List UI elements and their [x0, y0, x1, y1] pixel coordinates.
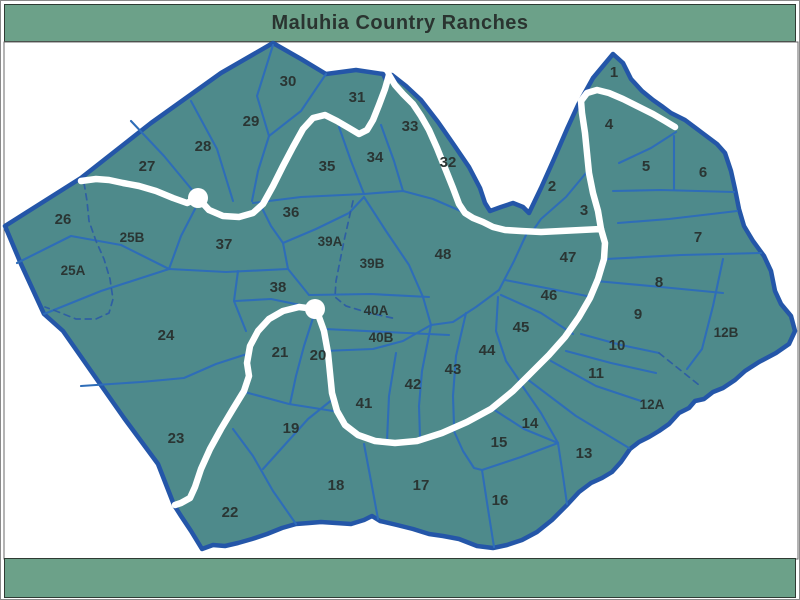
lot-label-46: 46: [541, 287, 558, 304]
lot-label-45: 45: [513, 319, 530, 336]
lot-label-12B: 12B: [714, 325, 739, 340]
lot-label-43: 43: [445, 361, 462, 378]
lot-label-19: 19: [283, 420, 300, 437]
lot-label-39B: 39B: [360, 256, 385, 271]
lot-label-5: 5: [642, 158, 650, 175]
lot-label-7: 7: [694, 229, 702, 246]
lot-label-34: 34: [367, 149, 384, 166]
lot-label-10: 10: [609, 337, 626, 354]
lot-label-18: 18: [328, 477, 345, 494]
lot-label-16: 16: [492, 492, 509, 509]
lot-label-37: 37: [216, 236, 233, 253]
lot-label-27: 27: [139, 158, 156, 175]
lot-label-38: 38: [270, 279, 287, 296]
lot-label-13: 13: [576, 445, 593, 462]
lot-label-25B: 25B: [120, 230, 145, 245]
lot-label-14: 14: [522, 415, 539, 432]
lot-label-35: 35: [319, 158, 336, 175]
lot-label-42: 42: [405, 376, 422, 393]
lot-label-17: 17: [413, 477, 430, 494]
lot-label-12A: 12A: [640, 397, 665, 412]
lot-label-11: 11: [588, 365, 604, 382]
lot-label-4: 4: [605, 116, 614, 133]
lot-label-23: 23: [168, 430, 185, 447]
lot-label-47: 47: [560, 249, 577, 266]
lot-label-6: 6: [699, 164, 707, 181]
lot-label-21: 21: [272, 344, 289, 361]
lot-label-31: 31: [349, 89, 366, 106]
lot-label-30: 30: [280, 73, 297, 90]
lot-label-33: 33: [402, 118, 419, 135]
lot-label-3: 3: [580, 202, 588, 219]
lot-label-24: 24: [158, 327, 175, 344]
scanned-map-page: Maluhia Country Ranches: [0, 0, 800, 600]
footer-band: [4, 558, 796, 598]
lot-label-40A: 40A: [364, 303, 389, 318]
parcel-map: 123456789101112A12B131415161718192021222…: [1, 1, 800, 600]
cul-de-sac-center: [305, 299, 325, 319]
lot-label-2: 2: [548, 178, 556, 195]
cul-de-sac-west: [188, 188, 208, 208]
lot-label-29: 29: [243, 113, 260, 130]
lot-label-9: 9: [634, 306, 642, 323]
lot-label-15: 15: [491, 434, 508, 451]
lot-label-25A: 25A: [61, 263, 86, 278]
lot-label-36: 36: [283, 204, 300, 221]
lot-label-28: 28: [195, 138, 212, 155]
lot-label-41: 41: [356, 395, 373, 412]
lot-label-22: 22: [222, 504, 239, 521]
lot-label-8: 8: [655, 274, 663, 291]
lot-label-48: 48: [435, 246, 452, 263]
lot-label-20: 20: [310, 347, 327, 364]
lot-label-26: 26: [55, 211, 72, 228]
lot-label-32: 32: [440, 154, 457, 171]
lot-label-1: 1: [610, 64, 618, 81]
lot-label-39A: 39A: [318, 234, 343, 249]
lot-label-40B: 40B: [369, 330, 394, 345]
lot-label-44: 44: [479, 342, 496, 359]
